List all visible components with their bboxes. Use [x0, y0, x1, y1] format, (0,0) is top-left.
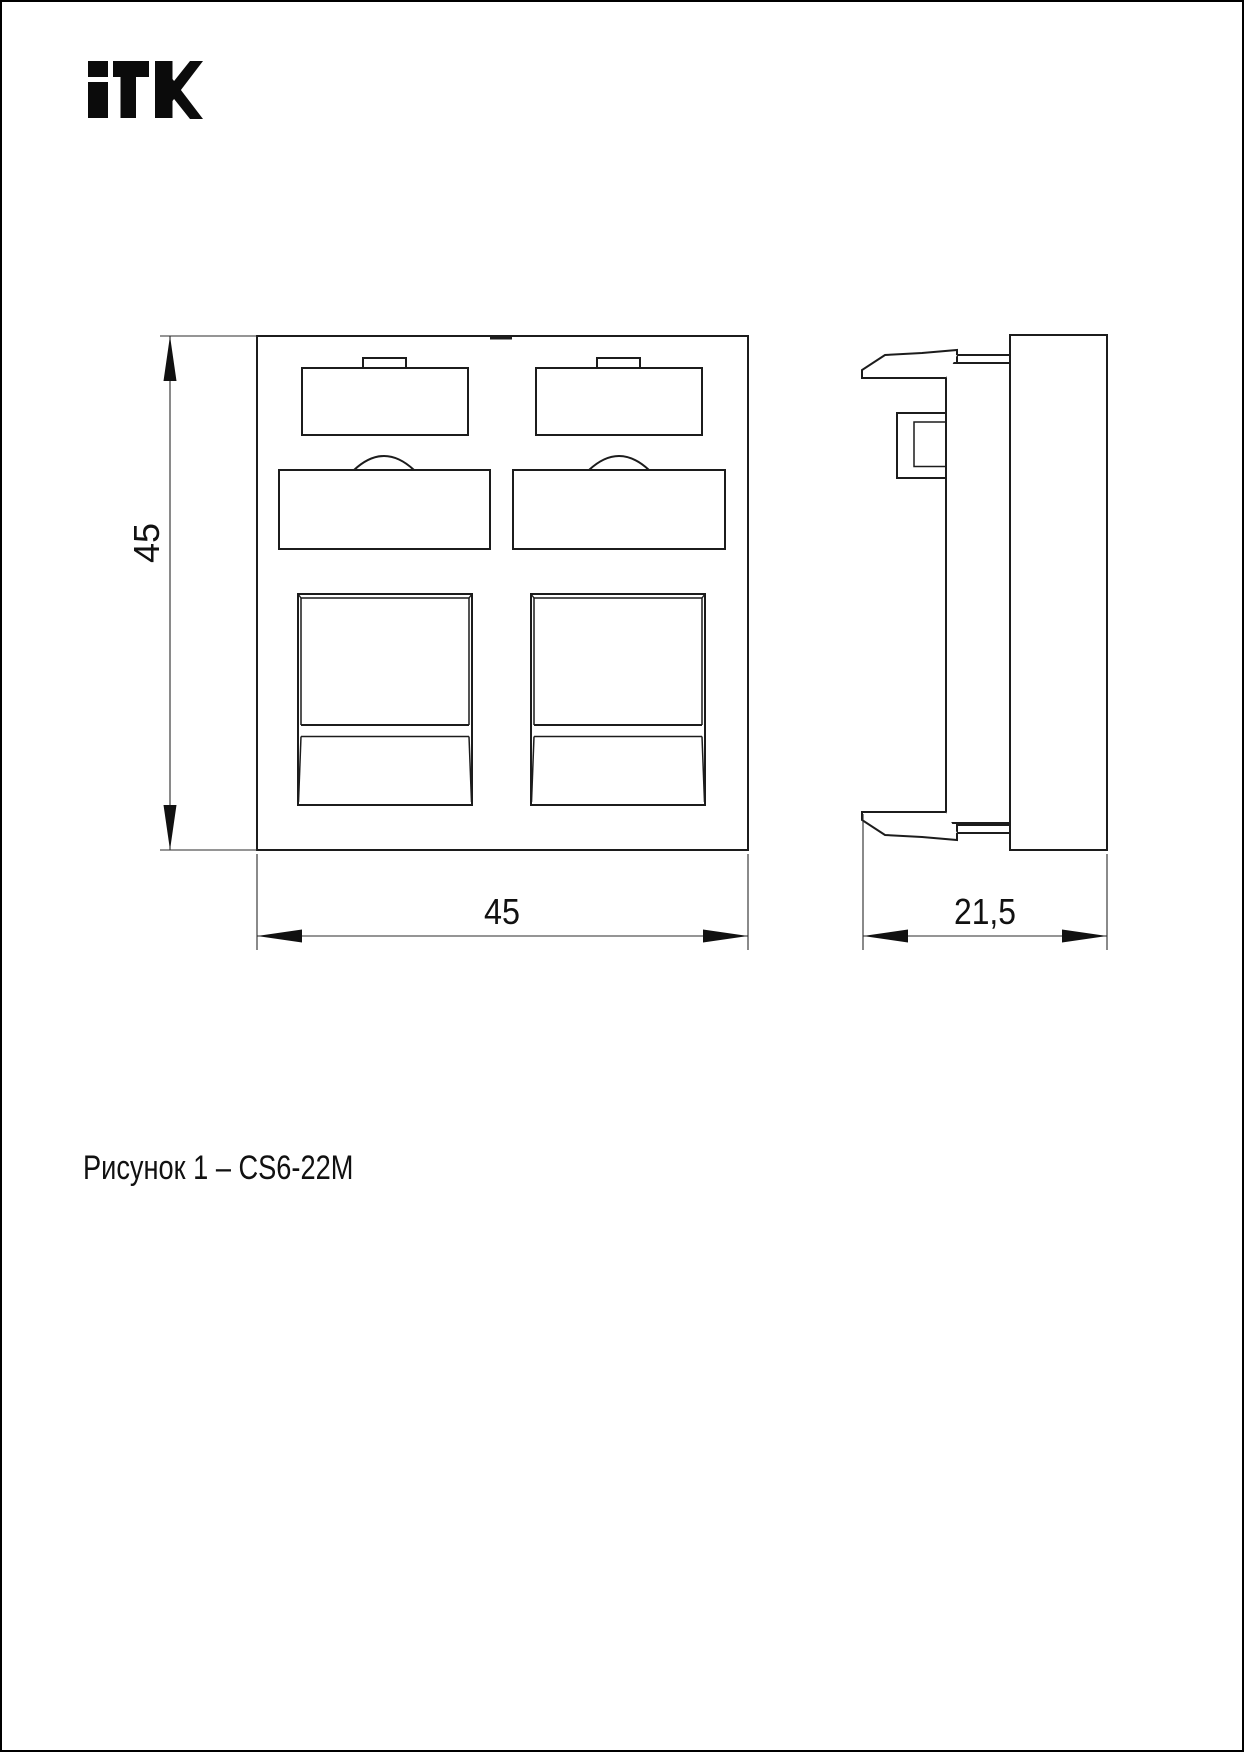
- dim-front-height-arrow-bottom: [164, 805, 177, 850]
- label-window-left: [302, 358, 468, 435]
- dim-front-width-arrow-left: [257, 930, 302, 943]
- figure-caption: Рисунок 1 – CS6-22M: [83, 1149, 353, 1188]
- dim-front-height-text: 45: [126, 523, 167, 563]
- page: ITK: [0, 0, 1244, 1752]
- side-bottom-clip: [862, 812, 957, 840]
- logo-k-stem: [155, 61, 173, 118]
- dim-side-depth-text: 21,5: [954, 891, 1016, 932]
- label-window-right: [536, 358, 702, 435]
- logo-i-stem: [88, 82, 108, 118]
- insert-slot-right-body: [513, 470, 725, 549]
- technical-drawing: ITK: [2, 2, 1242, 1750]
- dim-front-height: 45: [126, 336, 257, 850]
- insert-slot-right: [513, 456, 725, 549]
- logo-t-bar: [113, 61, 149, 77]
- dim-front-width: 45: [257, 854, 748, 950]
- label-window-left-body: [302, 368, 468, 435]
- logo-i-dot: [88, 61, 108, 77]
- logo-k-lower-arm: [173, 79, 204, 119]
- front-view: [257, 336, 748, 850]
- side-view: [862, 335, 1107, 850]
- dim-front-width-arrow-right: [703, 930, 748, 943]
- dim-front-height-arrow-top: [164, 336, 177, 381]
- side-bottom-step: [957, 825, 1010, 833]
- insert-slot-left-body: [279, 470, 490, 549]
- side-latch-inner: [914, 422, 946, 467]
- side-front-plate: [1010, 335, 1107, 850]
- dim-side-depth-arrow-left: [863, 930, 908, 943]
- itk-logo: ITK: [88, 61, 203, 119]
- side-top-clip: [862, 350, 957, 378]
- label-window-right-body: [536, 368, 702, 435]
- dim-front-width-text: 45: [484, 891, 520, 932]
- dim-side-depth-arrow-right: [1062, 930, 1107, 943]
- logo-t-stem: [121, 77, 137, 118]
- insert-slot-left: [279, 456, 490, 549]
- side-body: [946, 363, 1010, 823]
- side-top-step: [957, 355, 1010, 363]
